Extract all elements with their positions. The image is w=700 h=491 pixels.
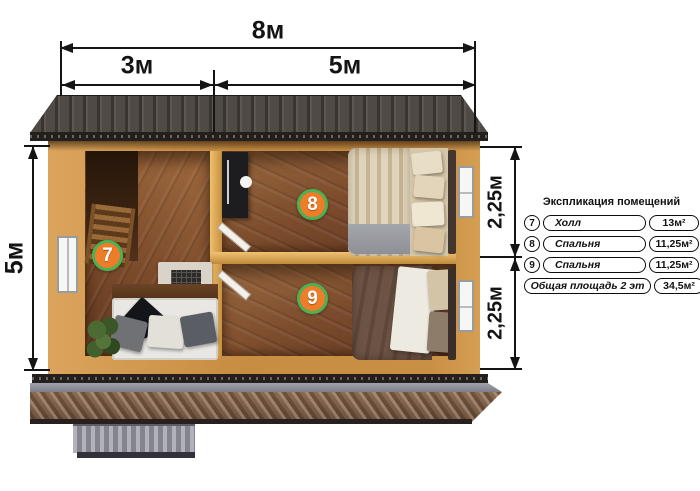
bed1-foot-throw — [348, 224, 410, 254]
legend-title: Экспликация помещений — [524, 196, 699, 208]
legend-area-bedroom2: 11,25м² — [649, 257, 699, 273]
dim-line-right-span — [214, 84, 476, 86]
dim-label-left-span: 3м — [121, 52, 153, 81]
window-bedroom1-mullion — [460, 192, 472, 194]
arrow-right-icon — [200, 80, 213, 90]
dim-tick — [480, 146, 522, 148]
room-badge-bedroom2: 9 — [297, 283, 328, 314]
legend-row-bedroom2: 9 Спальня 11,25м² — [524, 257, 699, 273]
bed2-headboard — [448, 268, 456, 360]
legend-area-hall: 13м² — [649, 215, 699, 231]
balcony-base — [77, 452, 195, 458]
legend-total-area: 34,5м² — [654, 278, 700, 294]
dim-label-total-width: 8м — [252, 17, 284, 46]
tv-cabinet-slit — [227, 160, 229, 204]
dim-tick — [24, 369, 50, 371]
legend-name-hall: Холл — [543, 215, 646, 231]
legend-num-hall: 7 — [524, 215, 540, 231]
dim-line-depth — [32, 146, 34, 371]
tv-cabinet-dome — [240, 176, 252, 188]
sofa-pillow-darkgray — [180, 311, 218, 347]
arrow-left-icon — [62, 80, 75, 90]
bed1-pillow — [411, 201, 444, 227]
legend-total-label: Общая площадь 2 эт — [524, 278, 651, 294]
lower-roof-ridge — [30, 383, 502, 392]
dim-line-total-width — [60, 47, 476, 49]
window-bedroom1 — [458, 166, 474, 218]
dim-tick — [24, 145, 50, 147]
dim-label-bedroom1-depth: 2,25м — [485, 175, 508, 229]
bed1-headboard — [448, 150, 456, 254]
dim-label-right-span: 5м — [329, 52, 361, 81]
potted-plant — [86, 316, 122, 362]
bed1-pillow — [413, 226, 445, 253]
legend-num-bedroom2: 9 — [524, 257, 540, 273]
lower-roof — [30, 392, 502, 422]
legend-row-total: Общая площадь 2 эт 34,5м² — [524, 278, 699, 294]
lower-roof-fascia — [32, 374, 488, 383]
arrow-up-icon — [510, 147, 520, 160]
bed1-pillow — [411, 150, 443, 175]
dim-label-bedroom2-depth: 2,25м — [485, 286, 508, 340]
tv-cabinet — [222, 152, 248, 218]
window-bedroom2-mullion — [460, 306, 472, 308]
dim-label-depth: 5м — [1, 242, 30, 274]
arrow-left-icon — [215, 80, 228, 90]
legend-row-bedroom1: 8 Спальня 11,25м² — [524, 236, 699, 252]
bed1-pillow — [413, 175, 445, 200]
window-left — [57, 236, 78, 293]
window-bedroom2 — [458, 280, 474, 332]
floor-plan-page: 7 8 9 8м 3м 5м 5м 2,25м 2,25м Экспликаци… — [0, 0, 700, 491]
upper-roof — [30, 95, 488, 133]
arrow-up-icon — [28, 146, 38, 159]
balcony-roof — [73, 424, 195, 453]
legend-name-bedroom1: Спальня — [543, 236, 646, 252]
dim-line-left-span — [62, 84, 214, 86]
legend-area-bedroom1: 11,25м² — [649, 236, 699, 252]
window-left-mullion — [67, 238, 69, 291]
room-badge-bedroom1: 8 — [297, 189, 328, 220]
legend-table: Экспликация помещений 7 Холл 13м² 8 Спал… — [519, 196, 699, 299]
legend-row-hall: 7 Холл 13м² — [524, 215, 699, 231]
arrow-right-icon — [463, 80, 476, 90]
dim-tick — [480, 256, 522, 258]
room-badge-hall: 7 — [92, 240, 123, 271]
legend-name-bedroom2: Спальня — [543, 257, 646, 273]
legend-num-bedroom1: 8 — [524, 236, 540, 252]
dim-tick — [480, 368, 522, 370]
upper-roof-fascia — [30, 132, 488, 141]
